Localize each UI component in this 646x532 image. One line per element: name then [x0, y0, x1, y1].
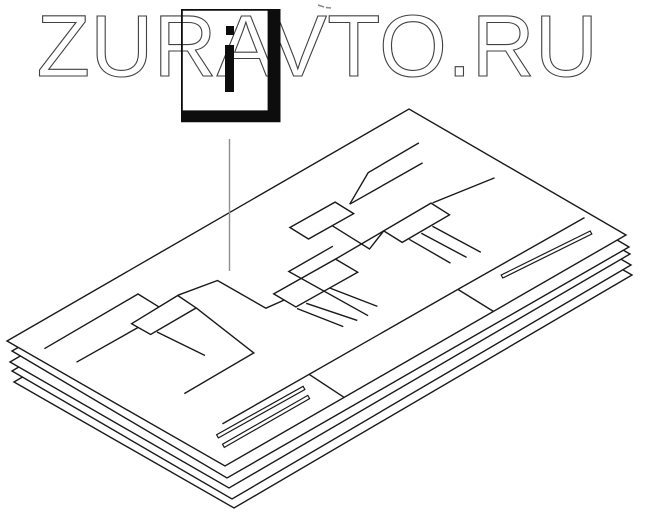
svg-text:ZURAVTO.RU: ZURAVTO.RU	[37, 0, 598, 95]
